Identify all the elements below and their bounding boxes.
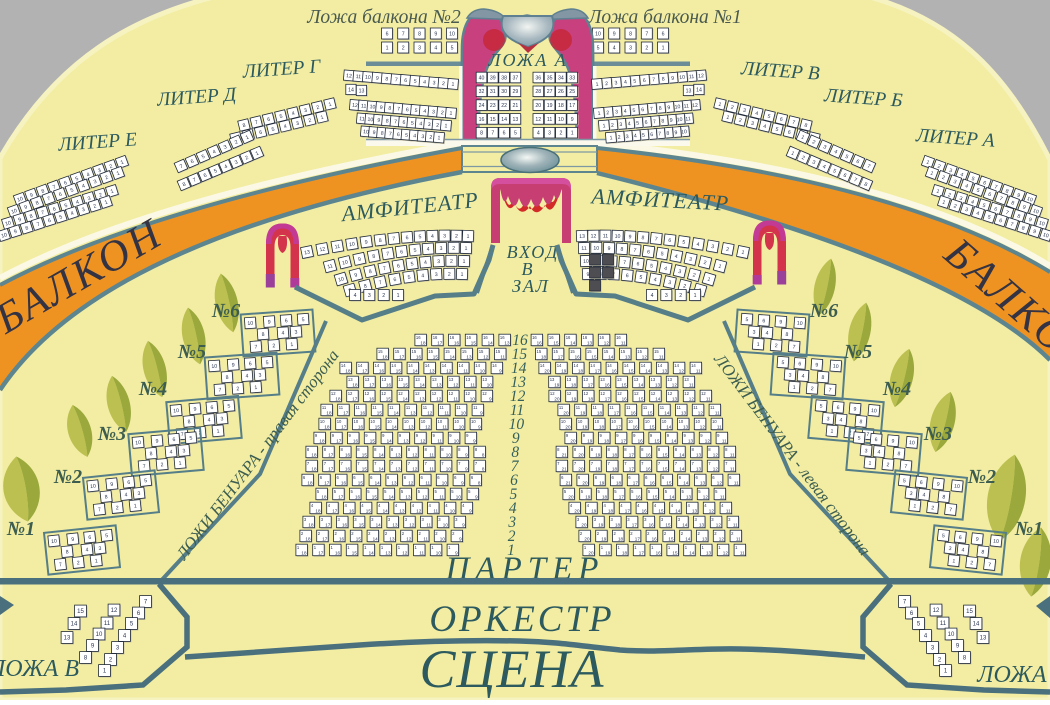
svg-text:15: 15 <box>77 609 84 615</box>
svg-text:№3: №3 <box>923 423 952 445</box>
svg-text:13: 13 <box>513 117 519 123</box>
svg-text:13: 13 <box>398 377 403 382</box>
svg-text:12: 12 <box>535 117 541 123</box>
svg-text:18: 18 <box>622 551 628 556</box>
svg-text:10: 10 <box>615 234 621 240</box>
svg-text:5: 5 <box>302 317 305 323</box>
svg-text:12: 12 <box>381 391 386 396</box>
svg-text:17: 17 <box>343 411 349 416</box>
svg-text:11: 11 <box>444 411 449 416</box>
svg-text:15: 15 <box>428 349 433 354</box>
svg-text:5: 5 <box>451 45 454 51</box>
svg-text:3: 3 <box>258 373 261 379</box>
svg-text:13: 13 <box>408 425 414 430</box>
svg-text:5: 5 <box>514 131 517 137</box>
svg-text:8: 8 <box>480 131 483 137</box>
svg-text:5: 5 <box>266 360 269 366</box>
svg-text:20: 20 <box>568 495 574 500</box>
svg-text:31: 31 <box>490 89 496 95</box>
svg-text:12: 12 <box>713 467 719 472</box>
svg-text:13: 13 <box>429 369 435 374</box>
svg-text:20: 20 <box>582 481 588 486</box>
svg-text:15: 15 <box>356 537 362 542</box>
svg-text:19: 19 <box>571 397 577 402</box>
svg-text:20: 20 <box>544 369 550 374</box>
svg-text:13: 13 <box>419 397 425 402</box>
svg-text:12: 12 <box>672 383 678 388</box>
svg-text:20: 20 <box>578 467 584 472</box>
svg-text:10: 10 <box>558 117 564 123</box>
svg-text:8: 8 <box>225 375 228 381</box>
svg-text:11: 11 <box>453 397 458 402</box>
svg-text:12: 12 <box>319 246 326 253</box>
svg-text:12: 12 <box>416 509 422 514</box>
svg-text:14: 14 <box>557 363 562 368</box>
svg-text:12: 12 <box>642 355 648 360</box>
svg-text:9: 9 <box>376 76 379 82</box>
svg-text:16: 16 <box>633 425 639 430</box>
svg-text:13: 13 <box>600 377 605 382</box>
svg-text:11: 11 <box>355 74 361 80</box>
svg-text:13: 13 <box>587 341 593 346</box>
svg-text:13: 13 <box>550 377 555 382</box>
svg-text:15: 15 <box>666 481 672 486</box>
svg-text:10: 10 <box>421 419 426 424</box>
svg-text:14: 14 <box>408 363 413 368</box>
svg-text:10: 10 <box>833 364 839 370</box>
svg-text:21: 21 <box>513 103 519 109</box>
svg-text:27: 27 <box>547 89 553 95</box>
svg-text:15: 15 <box>637 349 642 354</box>
svg-text:2: 2 <box>810 386 813 392</box>
svg-text:14: 14 <box>624 363 629 368</box>
svg-text:9: 9 <box>465 467 468 472</box>
svg-text:15: 15 <box>647 411 653 416</box>
svg-text:14: 14 <box>685 537 691 542</box>
svg-text:15: 15 <box>370 439 376 444</box>
svg-text:12: 12 <box>713 453 719 458</box>
svg-text:14: 14 <box>683 481 689 486</box>
svg-text:15: 15 <box>378 349 383 354</box>
svg-text:17: 17 <box>399 355 405 360</box>
svg-text:10: 10 <box>440 537 446 542</box>
svg-text:10: 10 <box>628 419 633 424</box>
svg-text:18: 18 <box>578 369 584 374</box>
svg-text:11: 11 <box>470 383 475 388</box>
svg-text:13: 13 <box>706 551 712 556</box>
svg-text:15: 15 <box>658 509 664 514</box>
svg-text:14: 14 <box>475 363 480 368</box>
svg-text:32: 32 <box>479 89 485 95</box>
svg-text:5: 5 <box>418 234 421 240</box>
svg-text:10: 10 <box>662 419 667 424</box>
svg-text:15: 15 <box>649 425 655 430</box>
svg-text:3: 3 <box>294 330 297 336</box>
svg-text:№3: №3 <box>97 423 126 445</box>
svg-text:4: 4 <box>427 247 430 253</box>
svg-text:14: 14 <box>392 425 398 430</box>
svg-text:13: 13 <box>359 88 365 94</box>
svg-text:13: 13 <box>466 377 471 382</box>
svg-text:12: 12 <box>425 425 431 430</box>
svg-text:14: 14 <box>403 397 409 402</box>
svg-text:14: 14 <box>638 383 644 388</box>
svg-text:16: 16 <box>636 495 642 500</box>
svg-text:13: 13 <box>504 341 510 346</box>
svg-text:16: 16 <box>638 439 644 444</box>
svg-text:18: 18 <box>571 383 577 388</box>
svg-text:6: 6 <box>285 318 288 324</box>
svg-text:11: 11 <box>437 439 442 444</box>
svg-text:4: 4 <box>765 330 768 336</box>
svg-text:2: 2 <box>605 81 608 87</box>
svg-text:4: 4 <box>434 45 437 51</box>
svg-text:17: 17 <box>322 537 328 542</box>
svg-text:12: 12 <box>365 391 370 396</box>
svg-text:12: 12 <box>465 391 470 396</box>
svg-text:11: 11 <box>322 405 327 410</box>
svg-text:18: 18 <box>308 523 314 528</box>
svg-text:9: 9 <box>461 481 464 486</box>
svg-text:14: 14 <box>375 481 381 486</box>
svg-text:16: 16 <box>537 341 543 346</box>
svg-text:30: 30 <box>501 89 507 95</box>
svg-text:12: 12 <box>420 439 426 444</box>
svg-text:17: 17 <box>595 369 601 374</box>
svg-text:34: 34 <box>558 75 564 81</box>
svg-text:12: 12 <box>346 73 352 79</box>
svg-text:16: 16 <box>650 481 656 486</box>
svg-text:9: 9 <box>473 439 476 444</box>
svg-text:7: 7 <box>652 77 655 83</box>
svg-text:7: 7 <box>792 344 795 350</box>
svg-text:11: 11 <box>722 439 727 444</box>
svg-text:12: 12 <box>698 411 704 416</box>
svg-text:11: 11 <box>559 405 564 410</box>
svg-text:8: 8 <box>666 131 669 137</box>
svg-text:15: 15 <box>553 349 558 354</box>
svg-text:14: 14 <box>387 439 393 444</box>
svg-text:10: 10 <box>365 75 371 81</box>
svg-text:10: 10 <box>993 538 999 545</box>
svg-text:16: 16 <box>342 523 348 528</box>
svg-text:№4: №4 <box>138 378 167 400</box>
svg-text:7: 7 <box>254 344 257 350</box>
svg-text:16: 16 <box>566 335 571 340</box>
svg-text:16: 16 <box>416 335 421 340</box>
svg-text:14: 14 <box>590 363 595 368</box>
svg-text:14: 14 <box>658 363 663 368</box>
svg-text:ЛОЖА Б: ЛОЖА Б <box>976 662 1050 688</box>
svg-text:7: 7 <box>395 77 398 83</box>
svg-text:15: 15 <box>537 349 542 354</box>
svg-text:16: 16 <box>386 383 392 388</box>
svg-text:10: 10 <box>450 509 456 514</box>
svg-text:11: 11 <box>406 405 411 410</box>
svg-text:14: 14 <box>501 117 507 123</box>
svg-text:23: 23 <box>490 103 496 109</box>
svg-text:8: 8 <box>821 375 824 381</box>
svg-text:38: 38 <box>501 75 507 81</box>
svg-text:3: 3 <box>788 373 791 379</box>
svg-text:8: 8 <box>482 453 485 458</box>
svg-text:11: 11 <box>593 405 598 410</box>
svg-text:11: 11 <box>733 523 738 528</box>
svg-text:10: 10 <box>797 321 803 327</box>
svg-text:40: 40 <box>479 75 485 81</box>
svg-text:2: 2 <box>442 81 445 87</box>
svg-text:10: 10 <box>404 419 409 424</box>
svg-text:1: 1 <box>451 82 454 88</box>
svg-text:28: 28 <box>535 89 541 95</box>
svg-text:13: 13 <box>702 537 708 542</box>
svg-text:10: 10 <box>454 439 460 444</box>
svg-text:9: 9 <box>232 362 235 368</box>
svg-text:16: 16 <box>349 509 355 514</box>
svg-text:14: 14 <box>682 523 688 528</box>
svg-text:17: 17 <box>635 537 641 542</box>
svg-text:18: 18 <box>315 509 321 514</box>
svg-text:9: 9 <box>779 319 782 325</box>
svg-text:16: 16 <box>379 369 385 374</box>
svg-text:17: 17 <box>629 453 635 458</box>
svg-text:15: 15 <box>362 453 368 458</box>
svg-text:15: 15 <box>496 349 501 354</box>
svg-text:13: 13 <box>64 636 71 642</box>
svg-text:№6: №6 <box>211 300 240 322</box>
svg-text:13: 13 <box>567 377 572 382</box>
svg-text:16: 16 <box>512 332 528 349</box>
svg-text:10: 10 <box>247 321 253 327</box>
svg-text:11: 11 <box>621 341 626 346</box>
svg-text:18: 18 <box>612 453 618 458</box>
svg-text:6: 6 <box>397 132 400 138</box>
svg-text:10: 10 <box>173 408 179 414</box>
svg-text:2: 2 <box>452 246 455 252</box>
svg-text:12: 12 <box>719 537 725 542</box>
svg-text:№1: №1 <box>6 518 35 540</box>
svg-text:13: 13 <box>392 523 398 528</box>
svg-text:18: 18 <box>597 411 603 416</box>
svg-text:10: 10 <box>363 129 369 135</box>
svg-text:16: 16 <box>454 341 460 346</box>
svg-text:10: 10 <box>593 246 599 252</box>
svg-text:18: 18 <box>352 383 358 388</box>
svg-text:13: 13 <box>667 377 672 382</box>
svg-text:5: 5 <box>745 317 748 323</box>
svg-text:12: 12 <box>446 369 452 374</box>
svg-text:3: 3 <box>548 131 551 137</box>
svg-text:16: 16 <box>599 335 604 340</box>
svg-text:10: 10 <box>349 241 356 248</box>
svg-text:16: 16 <box>583 335 588 340</box>
svg-text:33: 33 <box>569 75 575 81</box>
svg-text:19: 19 <box>580 411 586 416</box>
svg-text:17: 17 <box>437 341 443 346</box>
svg-text:11: 11 <box>734 481 739 486</box>
svg-text:12: 12 <box>482 391 487 396</box>
svg-text:14: 14 <box>341 363 346 368</box>
svg-text:12: 12 <box>331 391 336 396</box>
svg-text:12: 12 <box>449 391 454 396</box>
svg-text:2: 2 <box>774 343 777 349</box>
svg-text:17: 17 <box>605 397 611 402</box>
svg-text:9: 9 <box>465 453 468 458</box>
svg-text:14: 14 <box>369 551 375 556</box>
svg-text:14: 14 <box>375 363 380 368</box>
svg-text:5: 5 <box>597 45 600 51</box>
svg-text:13: 13 <box>634 377 639 382</box>
svg-text:4: 4 <box>281 330 284 336</box>
svg-text:11: 11 <box>726 509 731 514</box>
svg-text:11: 11 <box>473 405 478 410</box>
svg-text:15: 15 <box>386 397 392 402</box>
svg-text:11: 11 <box>677 405 682 410</box>
svg-text:8: 8 <box>629 31 632 37</box>
svg-text:13: 13 <box>700 481 706 486</box>
svg-text:1: 1 <box>462 259 465 265</box>
svg-text:15: 15 <box>375 425 381 430</box>
svg-text:9: 9 <box>469 509 472 514</box>
svg-text:10: 10 <box>695 419 700 424</box>
svg-text:13: 13 <box>683 425 689 430</box>
svg-text:17: 17 <box>325 523 331 528</box>
svg-text:12: 12 <box>591 234 597 240</box>
svg-text:14: 14 <box>394 411 400 416</box>
svg-text:3: 3 <box>432 80 435 86</box>
svg-text:10: 10 <box>645 419 650 424</box>
svg-text:12: 12 <box>717 481 723 486</box>
svg-text:9: 9 <box>628 234 631 240</box>
svg-text:13: 13 <box>617 377 622 382</box>
svg-text:16: 16 <box>345 453 351 458</box>
svg-text:12: 12 <box>703 495 709 500</box>
svg-text:10: 10 <box>456 495 462 500</box>
svg-text:12: 12 <box>668 391 673 396</box>
svg-text:10: 10 <box>442 481 448 486</box>
svg-text:12: 12 <box>684 391 689 396</box>
svg-text:3: 3 <box>629 45 632 51</box>
svg-text:10: 10 <box>595 419 600 424</box>
svg-text:14: 14 <box>608 355 614 360</box>
svg-text:14: 14 <box>655 397 661 402</box>
svg-text:12: 12 <box>415 391 420 396</box>
svg-text:4: 4 <box>413 133 416 139</box>
svg-text:17: 17 <box>369 383 375 388</box>
svg-text:11: 11 <box>429 453 434 458</box>
svg-text:20: 20 <box>581 523 587 528</box>
svg-text:10: 10 <box>387 419 392 424</box>
svg-text:СЦЕНА: СЦЕНА <box>420 639 605 699</box>
svg-text:16: 16 <box>500 335 505 340</box>
svg-text:16: 16 <box>612 369 618 374</box>
svg-text:14: 14 <box>383 509 389 514</box>
svg-text:6: 6 <box>386 31 389 37</box>
svg-text:1: 1 <box>464 246 467 252</box>
svg-text:12: 12 <box>723 551 729 556</box>
svg-text:8: 8 <box>662 76 665 82</box>
svg-text:12: 12 <box>483 355 489 360</box>
svg-text:11: 11 <box>356 405 361 410</box>
svg-text:14: 14 <box>607 363 612 368</box>
svg-text:8: 8 <box>785 332 788 338</box>
svg-text:5: 5 <box>781 360 784 366</box>
svg-text:13: 13 <box>348 377 353 382</box>
svg-text:18: 18 <box>321 495 327 500</box>
svg-text:11: 11 <box>334 244 340 251</box>
svg-text:10: 10 <box>320 419 325 424</box>
svg-text:17: 17 <box>621 439 627 444</box>
svg-text:5: 5 <box>413 79 416 85</box>
svg-text:№5: №5 <box>177 341 206 363</box>
svg-text:17: 17 <box>588 383 594 388</box>
svg-text:13: 13 <box>692 509 698 514</box>
svg-text:2: 2 <box>272 343 275 349</box>
svg-text:4: 4 <box>431 234 434 240</box>
svg-text:10: 10 <box>674 104 680 110</box>
svg-text:11: 11 <box>425 481 430 486</box>
svg-text:4: 4 <box>537 131 540 137</box>
svg-text:15: 15 <box>628 369 634 374</box>
svg-text:18: 18 <box>319 439 325 444</box>
svg-text:13: 13 <box>395 453 401 458</box>
svg-text:18: 18 <box>602 495 608 500</box>
svg-text:11: 11 <box>463 369 468 374</box>
svg-text:15: 15 <box>403 383 409 388</box>
svg-text:3: 3 <box>443 233 446 239</box>
svg-text:20: 20 <box>535 103 541 109</box>
svg-text:4: 4 <box>423 79 426 85</box>
svg-text:13: 13 <box>686 88 692 94</box>
svg-text:18: 18 <box>335 397 341 402</box>
svg-text:18: 18 <box>615 523 621 528</box>
svg-text:12: 12 <box>398 391 403 396</box>
svg-text:9: 9 <box>478 425 481 430</box>
svg-text:8: 8 <box>418 31 421 37</box>
svg-text:18: 18 <box>345 369 351 374</box>
svg-text:18: 18 <box>618 537 624 542</box>
svg-text:8: 8 <box>641 235 644 241</box>
svg-text:11: 11 <box>440 405 445 410</box>
svg-text:3: 3 <box>418 45 421 51</box>
svg-text:12: 12 <box>705 439 711 444</box>
svg-text:14: 14 <box>376 523 382 528</box>
svg-text:6: 6 <box>662 31 665 37</box>
svg-text:19: 19 <box>595 467 601 472</box>
svg-text:13: 13 <box>466 355 472 360</box>
svg-text:12: 12 <box>698 73 704 79</box>
svg-text:14: 14 <box>679 467 685 472</box>
svg-text:21: 21 <box>566 481 572 486</box>
svg-text:1: 1 <box>466 234 469 240</box>
svg-text:11: 11 <box>740 551 745 556</box>
svg-text:ЛОЖА В: ЛОЖА В <box>0 656 79 682</box>
svg-text:16: 16 <box>652 537 658 542</box>
svg-text:4: 4 <box>613 45 616 51</box>
svg-text:15: 15 <box>445 349 450 354</box>
svg-text:3: 3 <box>435 272 438 278</box>
svg-text:19: 19 <box>554 383 560 388</box>
svg-text:6: 6 <box>404 78 407 84</box>
svg-text:17: 17 <box>328 467 334 472</box>
svg-text:2: 2 <box>617 135 620 141</box>
svg-text:36: 36 <box>535 75 541 81</box>
svg-text:№4: №4 <box>882 378 911 400</box>
svg-text:2: 2 <box>448 272 451 278</box>
svg-text:16: 16 <box>360 411 366 416</box>
svg-text:13: 13 <box>696 467 702 472</box>
svg-text:16: 16 <box>339 537 345 542</box>
